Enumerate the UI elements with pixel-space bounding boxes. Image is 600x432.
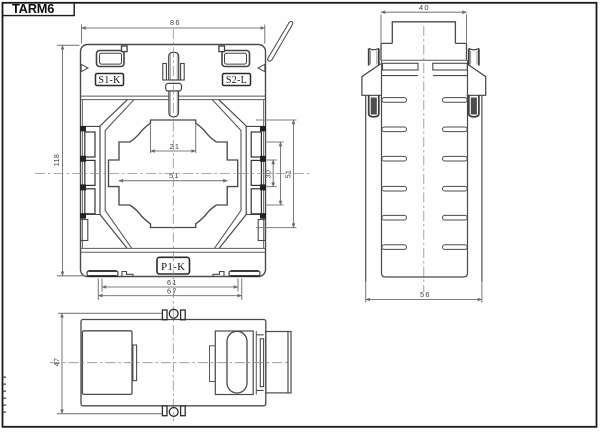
svg-text:21: 21 [170, 142, 181, 151]
svg-text:61: 61 [167, 278, 178, 287]
svg-text:TARM6: TARM6 [12, 1, 54, 16]
svg-text:56: 56 [420, 290, 431, 299]
svg-text:S1-K: S1-K [98, 75, 121, 86]
svg-text:47: 47 [54, 358, 61, 367]
svg-text:51: 51 [169, 171, 180, 180]
svg-text:118: 118 [54, 154, 61, 166]
svg-text:67: 67 [167, 287, 178, 296]
svg-text:S2-L: S2-L [226, 75, 247, 86]
svg-text:40: 40 [419, 3, 430, 12]
svg-text:86: 86 [170, 18, 181, 27]
